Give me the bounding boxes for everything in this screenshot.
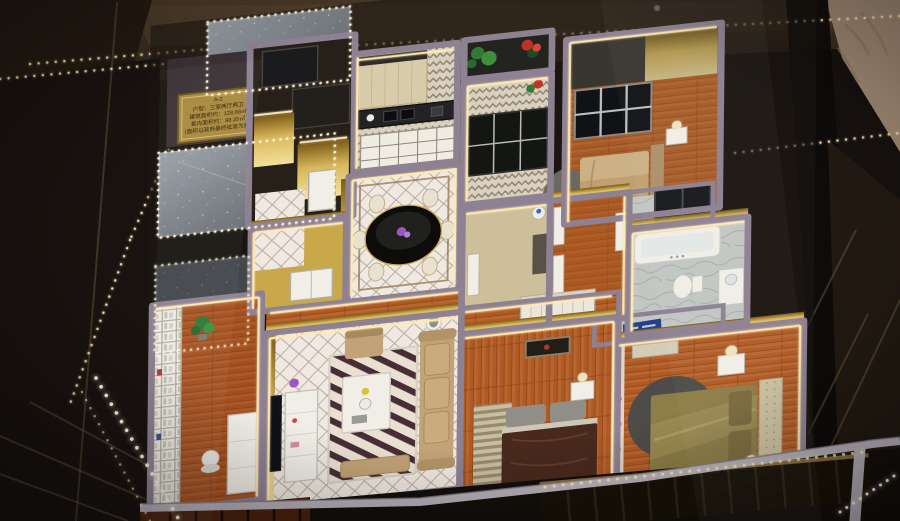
scene-svg: A-2 户型：三室两厅两卫 建筑面积约：128.66㎡ 套内面积约：98.35㎡… <box>0 0 900 521</box>
glass-sheen <box>0 0 900 521</box>
photo-apartment-model: A-2 户型：三室两厅两卫 建筑面积约：128.66㎡ 套内面积约：98.35㎡… <box>0 0 900 521</box>
vignette <box>0 0 900 521</box>
